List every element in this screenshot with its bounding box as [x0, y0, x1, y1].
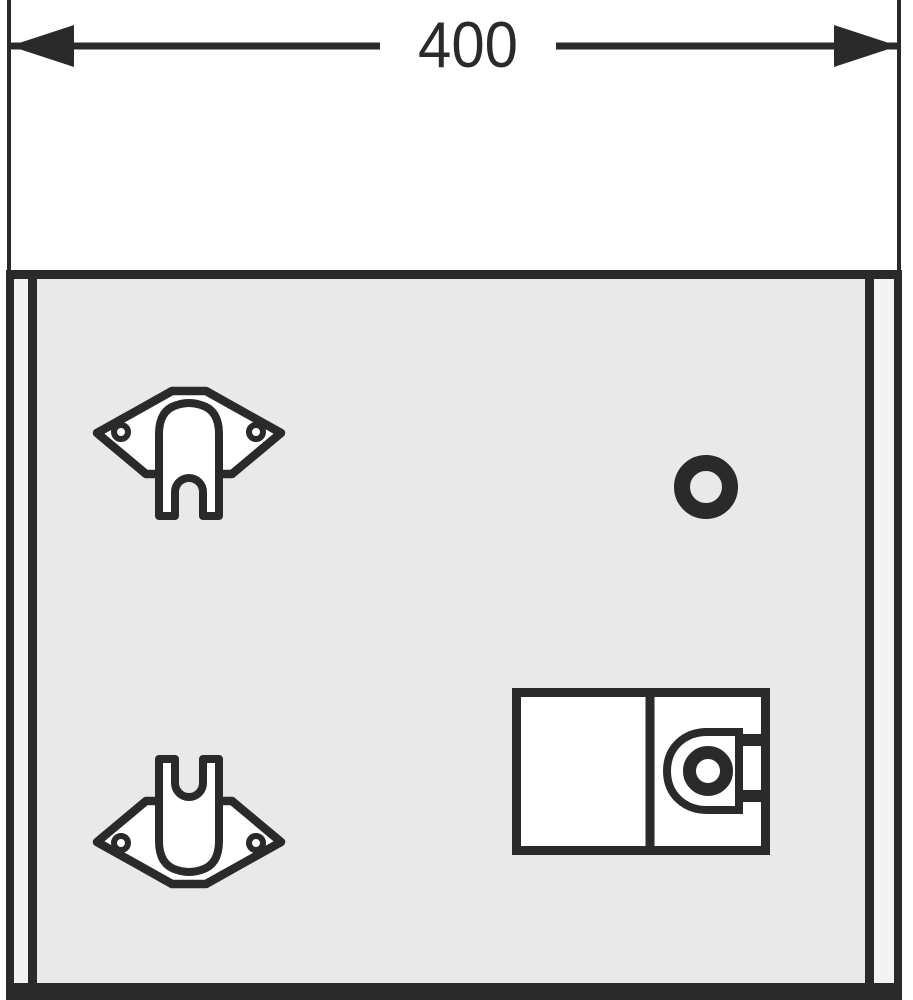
- lock-cylinder: [690, 753, 727, 790]
- cabinet-left-border: [6, 270, 14, 1000]
- arrow-right-icon: [834, 25, 898, 67]
- width-dimension: 400: [7, 0, 901, 271]
- dimension-value: 400: [418, 8, 518, 81]
- lock-tab-bottom: [741, 790, 763, 802]
- right-panel-seam: [865, 279, 874, 991]
- bottom-panel-seam: [14, 983, 894, 991]
- extension-line-left: [7, 0, 11, 271]
- lock-unit-icon: [517, 692, 766, 851]
- extension-line-right: [897, 0, 901, 271]
- cabinet-body: [6, 270, 902, 1000]
- lock-tab-top: [741, 734, 763, 746]
- left-panel-seam: [28, 279, 37, 991]
- bracket-screw-hole-left: [114, 425, 128, 439]
- cabinet-right-border: [894, 270, 902, 1000]
- technical-drawing: 400: [0, 0, 913, 1000]
- arrow-left-icon: [10, 25, 74, 67]
- cabinet-top-border: [6, 270, 902, 279]
- bracket-screw-hole-right: [249, 425, 263, 439]
- cabinet-bottom-border: [6, 991, 902, 1000]
- drawing-canvas: 400: [0, 0, 913, 1000]
